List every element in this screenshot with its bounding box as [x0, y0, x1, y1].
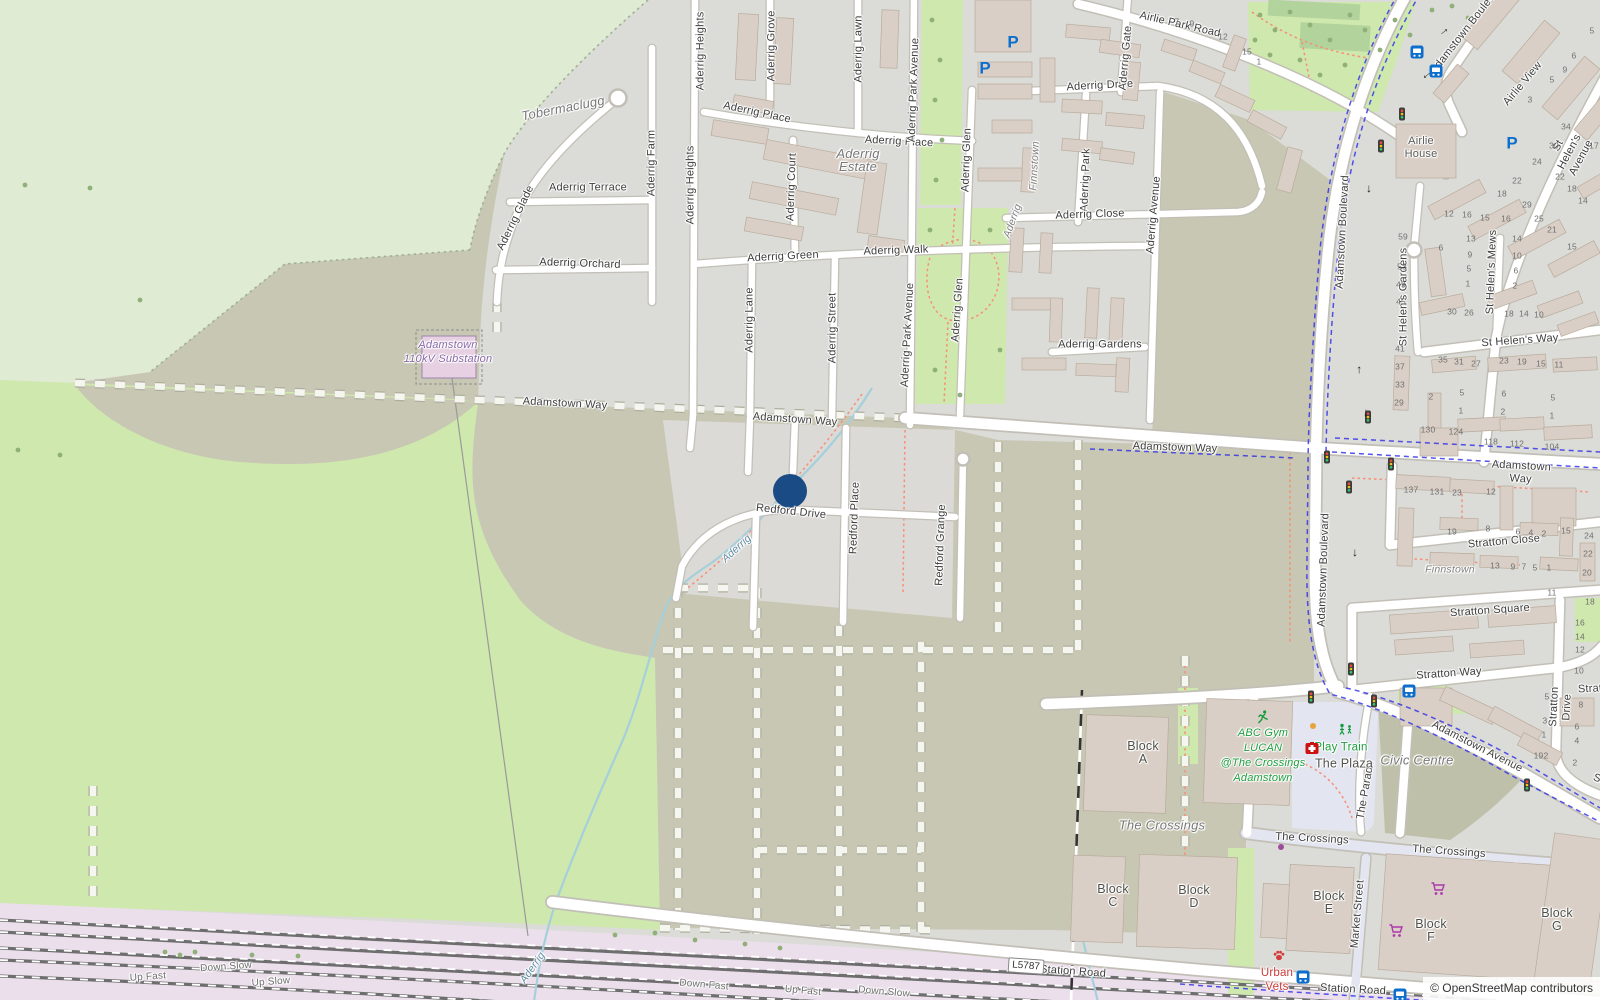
building: [1540, 557, 1579, 571]
building: [978, 84, 1032, 99]
playground-icon: [1338, 723, 1354, 736]
tree-icon: [193, 950, 198, 955]
building: [1500, 417, 1545, 431]
tree-icon: [1408, 33, 1413, 38]
tree-icon: [163, 950, 168, 955]
house-number: 34: [1561, 121, 1571, 134]
house-number: 16: [1462, 209, 1472, 222]
street-label: Aderrig Glen: [959, 128, 974, 193]
house-number: 13: [1466, 233, 1476, 246]
house-number: 20: [1582, 567, 1592, 580]
building: [1428, 179, 1486, 219]
block-label: Block G: [1541, 907, 1573, 933]
tree-icon: [693, 938, 698, 943]
house-number: 192: [1534, 750, 1549, 763]
parking-icon: P: [1007, 34, 1018, 51]
house-number: 4: [1575, 735, 1580, 748]
house-number: 24: [1584, 530, 1594, 543]
tree-icon: [16, 448, 21, 453]
street-label: Aderrig Lane: [744, 287, 757, 352]
tree-icon: [934, 178, 939, 183]
house-number: 23: [1499, 355, 1509, 368]
traffic-signal-icon: [1346, 481, 1352, 494]
house-number: 10: [1512, 250, 1522, 263]
place-label: Aderrig Estate: [836, 147, 879, 173]
building: [1419, 294, 1465, 316]
house-number: 5: [1460, 387, 1465, 400]
tree-icon: [1343, 63, 1348, 68]
house-number: 16: [1575, 617, 1585, 630]
building: [1425, 247, 1447, 297]
house-number: 15: [1561, 525, 1571, 538]
building: [1544, 425, 1593, 440]
traffic-signal-icon: [1399, 108, 1405, 121]
place-label: Finnstown: [1027, 141, 1043, 191]
street-label: Aderrig Farm: [646, 130, 659, 197]
tree-icon: [778, 946, 783, 951]
building: [1022, 358, 1066, 370]
oneway-arrow-icon: →: [1365, 183, 1377, 195]
house-number: 2: [1542, 528, 1547, 541]
house-number: 25: [1534, 213, 1544, 226]
tree-icon: [1268, 53, 1273, 58]
house-number: 45: [1396, 296, 1406, 309]
building: [1040, 58, 1055, 102]
house-number: 14: [1575, 631, 1585, 644]
block-label: Block C: [1097, 883, 1129, 909]
tree-icon: [88, 186, 93, 191]
building: [1261, 883, 1290, 938]
supermarket-icon: [1389, 924, 1404, 938]
parking-icon: P: [1506, 135, 1517, 152]
building: [735, 14, 758, 81]
tree-icon: [1348, 13, 1353, 18]
bus-stop-icon: [1297, 971, 1310, 984]
house-number: 10: [1574, 665, 1584, 678]
house-number: 12: [1486, 486, 1496, 499]
house-number: 15: [1536, 358, 1546, 371]
house-number: 41: [1395, 343, 1405, 356]
street-label: Aderrig Terrace: [549, 182, 627, 195]
street-label: Aderrig Close: [1055, 207, 1125, 222]
building: [978, 168, 1022, 181]
street-label: Adamstown Way: [1481, 458, 1561, 488]
tree-icon: [930, 18, 935, 23]
tree-icon: [933, 98, 938, 103]
house-number: 30: [1447, 306, 1457, 319]
oneway-arrow-icon: →: [1362, 407, 1374, 419]
house-number: 15: [1242, 46, 1252, 59]
house-number: 6: [1516, 526, 1521, 539]
pharmacy-icon: [1306, 742, 1319, 754]
house-number: 9: [1468, 249, 1473, 262]
house-number: 33: [1395, 379, 1405, 392]
poi-label: ABC Gym LUCAN @The Crossings Adamstown: [1221, 726, 1306, 786]
street-label: Aderrig Grove: [766, 10, 779, 81]
house-number: 53: [1397, 261, 1407, 274]
traffic-signal-icon: [1324, 451, 1330, 464]
house-number: 22: [1555, 171, 1565, 184]
traffic-signal-icon: [1308, 691, 1314, 704]
house-number: 6: [1575, 721, 1580, 734]
street-label: Aderrig Court: [784, 153, 799, 221]
house-number: 7: [1522, 561, 1527, 574]
street-label: Aderrig Walk: [863, 243, 928, 258]
tree-icon: [1318, 73, 1323, 78]
tree-icon: [250, 953, 255, 958]
street-label: Aderrig Heights: [695, 12, 708, 91]
building: [1115, 358, 1130, 393]
tree-icon: [988, 228, 993, 233]
house-number: 13: [1490, 560, 1500, 573]
house-number: 12: [1575, 644, 1585, 657]
building-label: Airlie House: [1405, 135, 1438, 161]
house-number: 29: [1522, 199, 1532, 212]
tree-icon: [998, 348, 1003, 353]
place-label: Civic Centre: [1380, 754, 1453, 767]
substation-label: Adamstown 110kV Substation: [404, 338, 493, 366]
tree-icon: [1363, 28, 1368, 33]
block-label: The Plaza: [1315, 758, 1373, 771]
building: [1066, 24, 1111, 41]
house-number: 22: [1512, 175, 1522, 188]
bus-stop-icon: [1411, 46, 1424, 59]
supermarket-icon: [1431, 882, 1446, 896]
street-label: Aderrig Lawn: [853, 15, 866, 82]
house-number: 10: [1534, 309, 1544, 322]
house-number: 9: [1563, 64, 1568, 77]
building: [1106, 112, 1145, 128]
gym-icon: [1257, 710, 1270, 724]
tree-icon: [296, 954, 301, 959]
house-number: 8: [1579, 699, 1584, 712]
tree-icon: [743, 942, 748, 947]
building: [1039, 233, 1053, 274]
house-number: 14: [1578, 195, 1588, 208]
house-number: 9: [1511, 561, 1516, 574]
house-number: 5: [1551, 392, 1556, 405]
house-number: 24: [1532, 156, 1542, 169]
tree-icon: [958, 393, 963, 398]
house-number: 30: [1549, 140, 1559, 153]
house-number: 31: [1454, 356, 1464, 369]
house-number: 3: [1543, 715, 1548, 728]
house-number: 1: [1542, 729, 1547, 742]
tree-icon: [1328, 38, 1333, 43]
building: [1076, 363, 1116, 376]
house-number: 5: [1550, 74, 1555, 87]
building: [1085, 288, 1100, 339]
tree-icon: [58, 453, 63, 458]
house-number: 104: [1545, 441, 1560, 454]
street-label: Aderrig Street: [827, 293, 840, 364]
house-number: 4: [1529, 527, 1534, 540]
building: [1395, 636, 1454, 655]
building: [1470, 640, 1525, 658]
traffic-signal-icon: [1371, 695, 1377, 708]
house-number: 19: [1517, 356, 1527, 369]
house-number: 21: [1547, 224, 1557, 237]
house-number: 118: [1484, 436, 1498, 449]
tree-icon: [653, 931, 658, 936]
tree-icon: [1450, 4, 1455, 9]
house-number: 1: [1550, 410, 1555, 423]
house-number: 15: [1480, 212, 1490, 225]
tree-icon: [23, 183, 28, 188]
house-number: 16: [1501, 213, 1511, 226]
tree-icon: [1308, 23, 1313, 28]
street-label: Aderrig Heights: [685, 146, 698, 225]
oneway-arrow-icon: →: [1351, 547, 1363, 559]
house-number: 26: [1464, 307, 1474, 320]
street-label: Stratton: [1578, 681, 1600, 696]
house-number: 12: [1444, 208, 1454, 221]
house-number: 1: [1466, 278, 1471, 291]
traffic-signal-icon: [1524, 779, 1530, 792]
house-number: 18: [1497, 188, 1507, 201]
map-canvas[interactable]: TobermacluggAderrig GladeAderrig Terrace…: [0, 0, 1600, 1000]
house-number: 19: [1447, 526, 1457, 539]
house-number: 124: [1449, 426, 1464, 439]
house-number: 18: [1585, 596, 1595, 609]
poi-label: Play Train: [1314, 742, 1367, 755]
house-number: 15: [1567, 241, 1577, 254]
house-number: 5: [1590, 25, 1595, 38]
place-label: The Crossings: [1119, 819, 1205, 832]
tree-icon: [1430, 8, 1435, 13]
house-number: 130: [1421, 424, 1436, 437]
house-number: 7: [1175, 16, 1180, 29]
building: [1109, 298, 1124, 343]
block-label: Block D: [1178, 884, 1210, 910]
tree-icon: [933, 368, 938, 373]
tree-icon: [1378, 48, 1383, 53]
house-number: 22: [1583, 548, 1593, 561]
house-number: 23: [1452, 487, 1462, 500]
tree-icon: [178, 953, 183, 958]
house-number: 11: [1547, 587, 1556, 600]
tree-icon: [1273, 28, 1278, 33]
attribution[interactable]: © OpenStreetMap contributors: [1423, 977, 1600, 1000]
house-number: 27: [1471, 358, 1481, 371]
house-number: 6: [1572, 50, 1577, 63]
road-ref-badge: L5787: [1008, 957, 1045, 974]
house-number: 137: [1404, 484, 1419, 497]
building: [1440, 517, 1478, 530]
house-number: 5: [1545, 691, 1550, 704]
street-label: Redford Place: [847, 482, 863, 555]
railway-track-label: Up Fast: [129, 969, 166, 985]
poi-dot-icon: [1278, 844, 1284, 850]
tree-icon: [1288, 10, 1293, 15]
house-number: 3: [1528, 94, 1533, 107]
house-number: 2: [1429, 391, 1434, 404]
house-number: 8: [1486, 523, 1491, 536]
building: [992, 120, 1032, 133]
oneway-arrow-icon: →: [1351, 364, 1363, 376]
house-number: 6: [1514, 265, 1519, 278]
house-number: 1: [1547, 562, 1552, 575]
building: [975, 0, 1031, 52]
street-label: Aderrig Orchard: [539, 256, 621, 272]
building: [1049, 298, 1063, 342]
building: [1397, 508, 1414, 566]
house-number: 6: [1439, 242, 1444, 255]
street-label: Stratton Drive: [1547, 686, 1575, 727]
street-label: Aderrig Gardens: [1058, 339, 1142, 352]
house-number: 49: [1396, 279, 1406, 292]
parking-icon: P: [979, 60, 990, 77]
block-label: Block A: [1127, 740, 1159, 766]
tree-icon: [138, 298, 143, 303]
tree-icon: [940, 138, 945, 143]
house-number: 29: [1394, 397, 1404, 410]
house-number: 2: [1513, 280, 1518, 293]
building: [1458, 417, 1507, 432]
street-label: Aderrig Park: [1078, 148, 1093, 212]
railway-track-label: Up Slow: [251, 974, 290, 990]
traffic-signal-icon: [1348, 663, 1354, 676]
tree-icon: [1253, 38, 1258, 43]
tree-icon: [1298, 58, 1303, 63]
tree-icon: [613, 933, 618, 938]
house-number: 5: [1467, 263, 1472, 276]
building: [1012, 298, 1052, 310]
house-number: 2: [1573, 757, 1578, 770]
house-number: 17: [1589, 140, 1599, 153]
poi-dot-icon: [1310, 723, 1316, 729]
tree-icon: [1393, 18, 1398, 23]
house-number: 11: [1554, 359, 1563, 372]
building: [1500, 486, 1513, 530]
house-number: 14: [1519, 308, 1529, 321]
bus-stop-icon: [1394, 989, 1407, 1000]
building: [1062, 99, 1103, 114]
block-label: Block F: [1415, 918, 1447, 944]
house-number: 5: [1533, 562, 1538, 575]
house-number: 59: [1398, 231, 1408, 244]
traffic-signal-icon: [1388, 458, 1394, 471]
vet-icon: [1273, 949, 1286, 961]
building: [880, 10, 899, 69]
building: [1099, 148, 1134, 165]
tree-icon: [1258, 13, 1263, 18]
house-number: 12: [1218, 31, 1228, 44]
block-label: Block E: [1313, 890, 1345, 916]
tree-icon: [928, 228, 933, 233]
house-number: 35: [1438, 354, 1448, 367]
house-number: 18: [1504, 308, 1514, 321]
house-number: 18: [1567, 183, 1577, 196]
poi-label: Urban Vets: [1261, 966, 1293, 994]
house-number: 1: [1459, 405, 1464, 418]
tree-icon: [938, 58, 943, 63]
place-label: Finnstown: [1425, 564, 1475, 577]
house-number: 9: [1190, 18, 1195, 31]
house-number: 112: [1510, 438, 1524, 451]
bus-stop-icon: [1403, 685, 1416, 698]
house-number: 37: [1395, 361, 1405, 374]
house-number: 14: [1512, 233, 1522, 246]
house-number: 131: [1430, 486, 1445, 499]
building: [1189, 60, 1225, 84]
house-number: 2: [1501, 406, 1506, 419]
house-number: 6: [1502, 388, 1507, 401]
traffic-signal-icon: [1378, 140, 1384, 153]
house-number: 1: [1257, 56, 1262, 69]
location-marker[interactable]: [773, 474, 807, 508]
